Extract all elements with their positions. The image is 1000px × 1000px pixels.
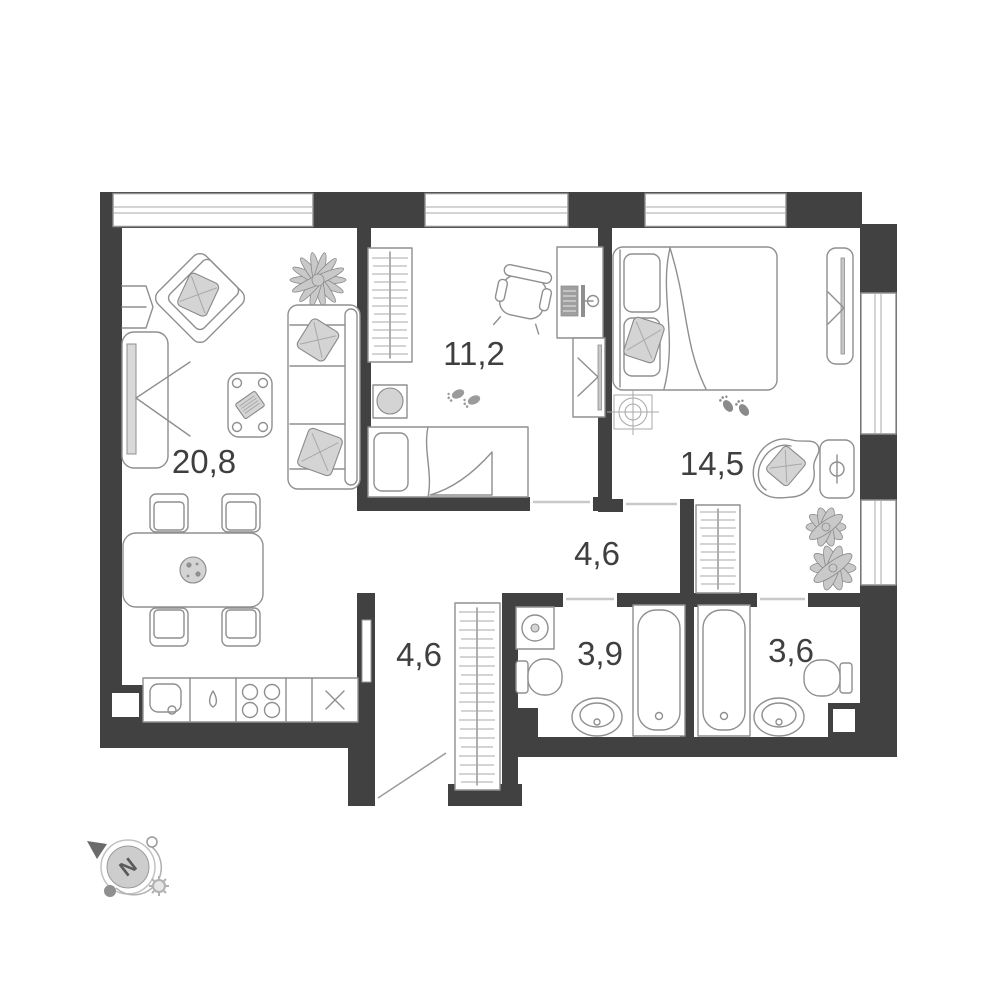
wardrobe-icon [368, 248, 412, 362]
toilet-icon [516, 659, 562, 695]
floor-plan-page: 20,8 11,2 14,5 4,6 4,6 3,9 3,6 N [0, 0, 1000, 1000]
armchair-icon [753, 439, 819, 498]
bath-bottom-wall [502, 737, 897, 757]
entry-door-swing [378, 753, 446, 798]
plant-icon [806, 506, 856, 592]
label-bedroom-small-area: 11,2 [443, 335, 505, 372]
label-bathroom-area: 3,9 [577, 635, 623, 672]
side-table-lamp-icon [820, 440, 854, 498]
window-top-3 [645, 194, 786, 227]
kitchen-duct-notch [112, 693, 139, 717]
chair-icon [222, 494, 260, 532]
label-bedroom-master-area: 14,5 [680, 445, 744, 482]
window-top-1 [113, 194, 313, 227]
footprints-icon [718, 394, 752, 418]
room-hall [455, 603, 500, 790]
single-bed-icon [368, 427, 528, 497]
chair-icon [150, 494, 188, 532]
armchair-icon [152, 250, 248, 346]
wardrobe-icon [696, 505, 740, 593]
label-corridor-area: 4,6 [574, 535, 620, 572]
speaker-icon [122, 286, 153, 328]
washbasin-icon [572, 698, 622, 736]
compass-open-dot [147, 837, 157, 847]
compass: N [87, 837, 169, 897]
compass-filled-dot [104, 885, 116, 897]
room-bedroom-master [607, 247, 856, 593]
washbasin-icon [754, 698, 804, 736]
label-living-kitchen-area: 20,8 [172, 443, 236, 480]
stool-icon [373, 385, 407, 418]
bath-pillar [512, 708, 538, 737]
pocket-door [362, 620, 371, 682]
window-top-2 [425, 194, 568, 227]
footprints-icon [446, 387, 482, 409]
coffee-table-icon [228, 373, 272, 437]
label-hall-area: 4,6 [396, 636, 442, 673]
bathtub-icon [698, 605, 750, 736]
washing-machine-icon [516, 607, 554, 649]
plant-icon [290, 252, 346, 309]
window-right-2 [861, 500, 896, 585]
room-living-kitchen [122, 250, 360, 722]
sofa-icon [288, 305, 360, 489]
kitchen-counter [143, 678, 358, 722]
mirror-icon [573, 338, 605, 417]
exterior-wall-left [100, 192, 122, 748]
double-bed-icon [613, 247, 777, 390]
room-bedroom-small [368, 247, 605, 497]
sun-icon [149, 876, 169, 896]
bathtub-icon [633, 605, 685, 736]
exterior-wall-bottom-left [100, 722, 375, 748]
chair-icon [150, 608, 188, 646]
chair-icon [222, 608, 260, 646]
mirror-icon [827, 248, 853, 364]
ceiling-light-icon [607, 389, 659, 435]
office-chair-icon [490, 263, 556, 335]
dining-table-icon [123, 533, 263, 607]
window-right-1 [861, 293, 896, 434]
wardrobe-icon [455, 603, 500, 790]
desk-icon [557, 247, 603, 338]
shaft-notch [833, 709, 855, 732]
floor-plan: 20,8 11,2 14,5 4,6 4,6 3,9 3,6 N [0, 0, 1000, 1000]
label-bathroom-master-area: 3,6 [768, 632, 814, 669]
